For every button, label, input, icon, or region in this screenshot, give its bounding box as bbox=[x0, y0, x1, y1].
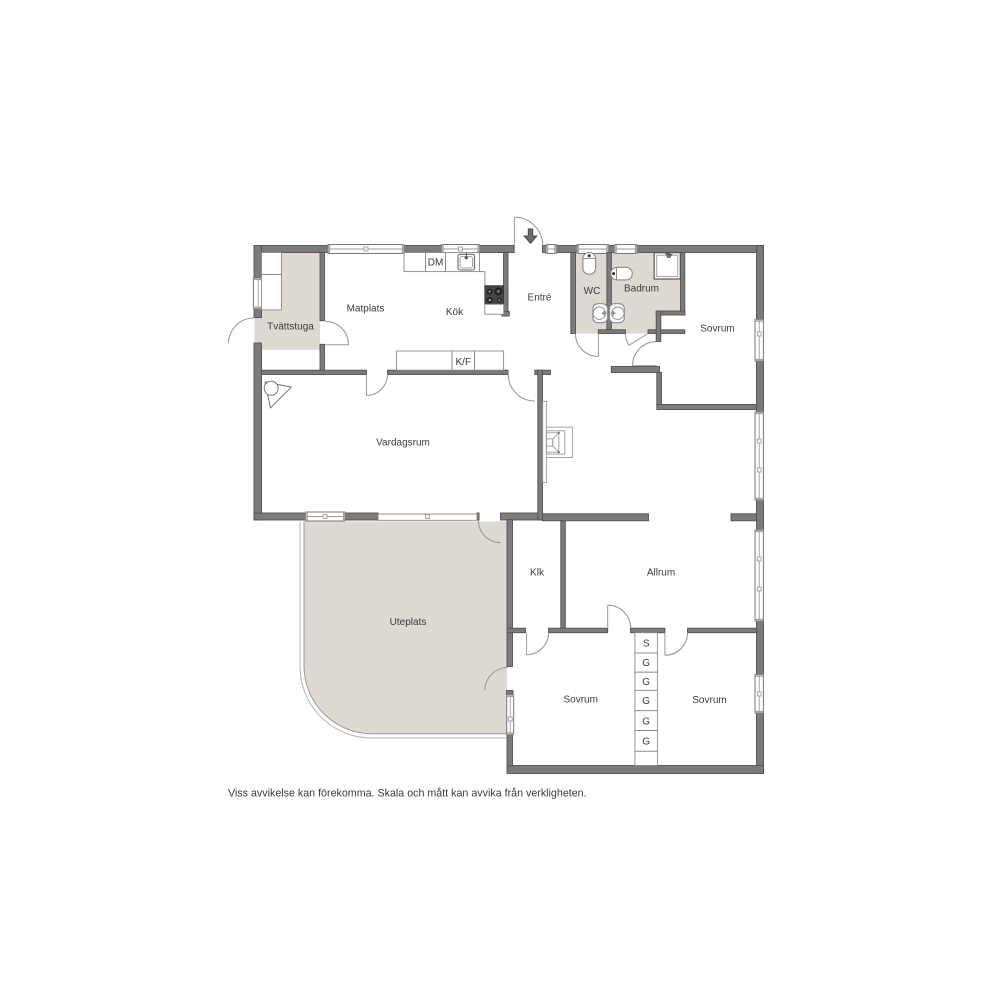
svg-text:Badrum: Badrum bbox=[624, 284, 659, 295]
svg-text:G: G bbox=[642, 696, 650, 707]
svg-text:S: S bbox=[643, 639, 650, 650]
svg-text:G: G bbox=[642, 658, 650, 669]
svg-text:Sovrum: Sovrum bbox=[700, 324, 734, 335]
svg-text:Viss avvikelse kan förekomma.: Viss avvikelse kan förekomma. Skala och … bbox=[228, 788, 587, 800]
svg-text:Tvättstuga: Tvättstuga bbox=[267, 322, 314, 333]
svg-text:DM: DM bbox=[428, 258, 444, 269]
svg-text:Uteplats: Uteplats bbox=[390, 617, 427, 628]
svg-text:Kök: Kök bbox=[446, 307, 464, 318]
svg-text:G: G bbox=[642, 677, 650, 688]
svg-text:Klk: Klk bbox=[530, 568, 545, 579]
svg-text:Allrum: Allrum bbox=[647, 567, 675, 578]
svg-text:Sovrum: Sovrum bbox=[692, 695, 726, 706]
svg-text:WC: WC bbox=[584, 286, 601, 297]
svg-text:G: G bbox=[642, 737, 650, 748]
svg-text:Vardagsrum: Vardagsrum bbox=[376, 437, 430, 448]
svg-text:K/F: K/F bbox=[456, 357, 472, 368]
svg-text:G: G bbox=[642, 716, 650, 727]
svg-text:Entré: Entré bbox=[528, 292, 552, 303]
svg-text:Sovrum: Sovrum bbox=[563, 695, 597, 706]
svg-text:Matplats: Matplats bbox=[347, 304, 385, 315]
